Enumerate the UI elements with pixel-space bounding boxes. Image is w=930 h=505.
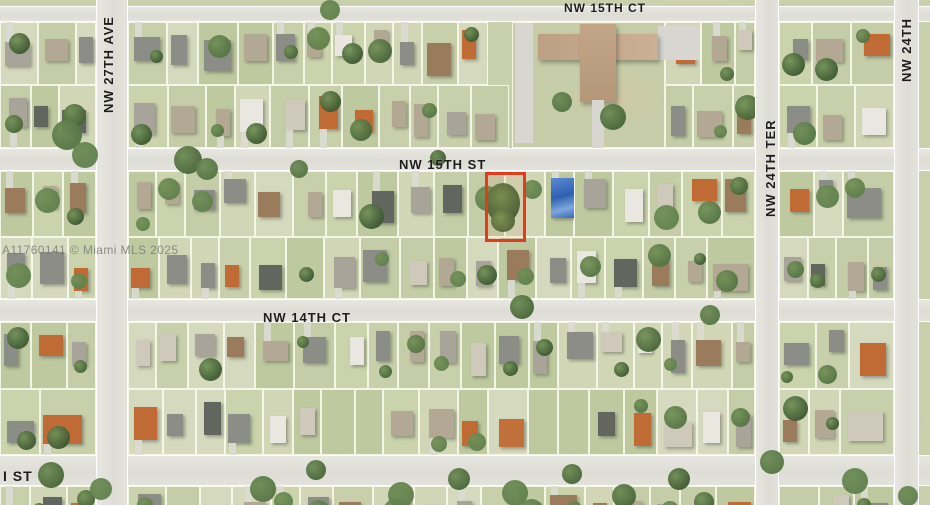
tree-canopy xyxy=(612,484,636,505)
street-label-nw-15th-st: NW 15TH ST xyxy=(399,157,486,172)
mls-watermark: A11760141 © Miami MLS 2025 xyxy=(2,243,178,257)
tree-canopy xyxy=(700,305,720,325)
tree-canopy xyxy=(562,464,582,484)
street-label-i-st: I ST xyxy=(3,468,33,484)
tree-canopy xyxy=(38,462,64,488)
tree-canopy xyxy=(388,482,414,505)
tree-canopy xyxy=(250,476,276,502)
tree-canopy xyxy=(842,468,868,494)
satellite-parcel-map: NW 15TH CT NW 27TH AVE NW 24TH NW 15TH S… xyxy=(0,0,930,505)
tree-canopy xyxy=(196,158,218,180)
church-building-stem xyxy=(580,24,616,102)
tree-canopy xyxy=(668,468,690,490)
tree-canopy xyxy=(600,104,626,130)
tree-canopy xyxy=(898,486,918,505)
tree-canopy xyxy=(760,450,784,474)
tree-canopy xyxy=(90,478,112,500)
tree-canopy xyxy=(290,160,308,178)
street-label-nw-27th-ave: NW 27TH AVE xyxy=(101,16,116,113)
tree-canopy xyxy=(306,460,326,480)
tree-canopy xyxy=(448,468,470,490)
street-label-nw-15th-ct: NW 15TH CT xyxy=(564,1,646,15)
street-label-nw-24th-ave: NW 24TH xyxy=(899,18,914,82)
parking-area xyxy=(515,23,533,143)
tree-canopy xyxy=(502,480,528,505)
tree-canopy xyxy=(510,295,534,319)
street-label-nw-24th-ter: NW 24TH TER xyxy=(763,119,778,217)
highlighted-parcel xyxy=(485,172,526,242)
street-label-nw-14th-ct: NW 14TH CT xyxy=(263,310,351,325)
tree-canopy xyxy=(552,92,572,112)
tree-canopy xyxy=(72,142,98,168)
parking-area xyxy=(658,26,700,60)
tree-canopy xyxy=(320,0,340,20)
